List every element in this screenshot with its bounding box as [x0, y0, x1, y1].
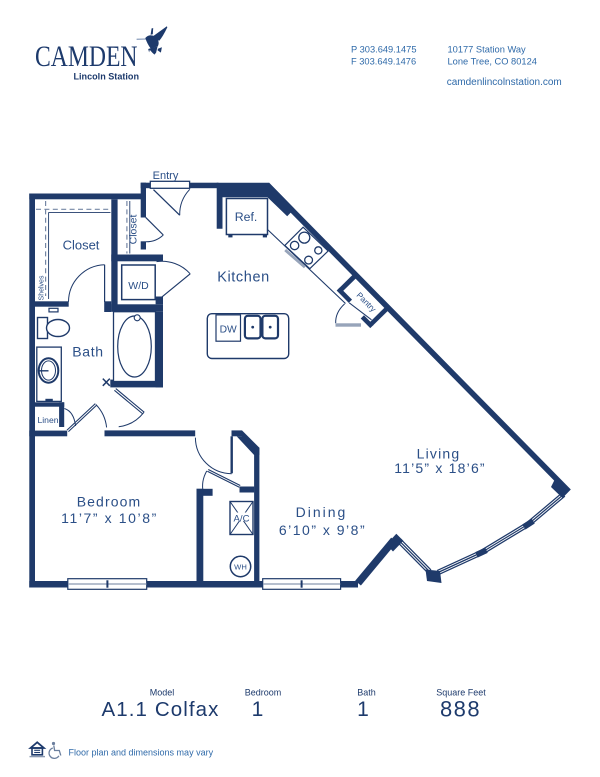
- svg-text:11’5” x 18’6”: 11’5” x 18’6”: [394, 460, 486, 476]
- svg-text:Shelves: Shelves: [39, 275, 46, 300]
- svg-text:Model: Model: [150, 688, 175, 698]
- svg-text:A1.1 Colfax: A1.1 Colfax: [101, 698, 219, 721]
- svg-text:Bath: Bath: [357, 688, 376, 698]
- svg-text:Lincoln Station: Lincoln Station: [74, 72, 140, 82]
- svg-text:W/D: W/D: [128, 280, 149, 292]
- svg-text:1: 1: [357, 698, 369, 721]
- svg-text:Lone Tree, CO 80124: Lone Tree, CO 80124: [448, 57, 537, 67]
- svg-text:Closet: Closet: [128, 215, 140, 245]
- svg-text:888: 888: [440, 697, 481, 722]
- svg-text:Bedroom: Bedroom: [77, 494, 142, 510]
- svg-text:WH: WH: [234, 562, 247, 571]
- svg-text:CAMDEN: CAMDEN: [35, 40, 138, 73]
- svg-text:Kitchen: Kitchen: [217, 270, 270, 286]
- svg-text:Floor plan and dimensions may: Floor plan and dimensions may vary: [69, 748, 214, 758]
- svg-text:Ref.: Ref.: [235, 210, 258, 224]
- svg-text:Dining: Dining: [296, 504, 348, 520]
- svg-text:Entry: Entry: [153, 170, 179, 182]
- svg-text:DW: DW: [220, 325, 237, 336]
- svg-text:Closet: Closet: [63, 238, 100, 253]
- svg-text:A/C: A/C: [234, 513, 250, 524]
- svg-text:Bedroom: Bedroom: [245, 688, 282, 698]
- svg-text:Bath: Bath: [72, 344, 104, 360]
- svg-text:11’7” x 10’8”: 11’7” x 10’8”: [61, 510, 158, 526]
- svg-text:Linen: Linen: [37, 415, 58, 425]
- svg-text:6’10” x 9’8”: 6’10” x 9’8”: [279, 522, 366, 538]
- svg-text:10177 Station Way: 10177 Station Way: [448, 45, 527, 55]
- svg-text:F 303.649.1476: F 303.649.1476: [351, 57, 416, 67]
- svg-text:P 303.649.1475: P 303.649.1475: [351, 45, 417, 55]
- svg-text:camdenlincolnstation.com: camdenlincolnstation.com: [447, 77, 562, 88]
- svg-text:1: 1: [252, 698, 264, 721]
